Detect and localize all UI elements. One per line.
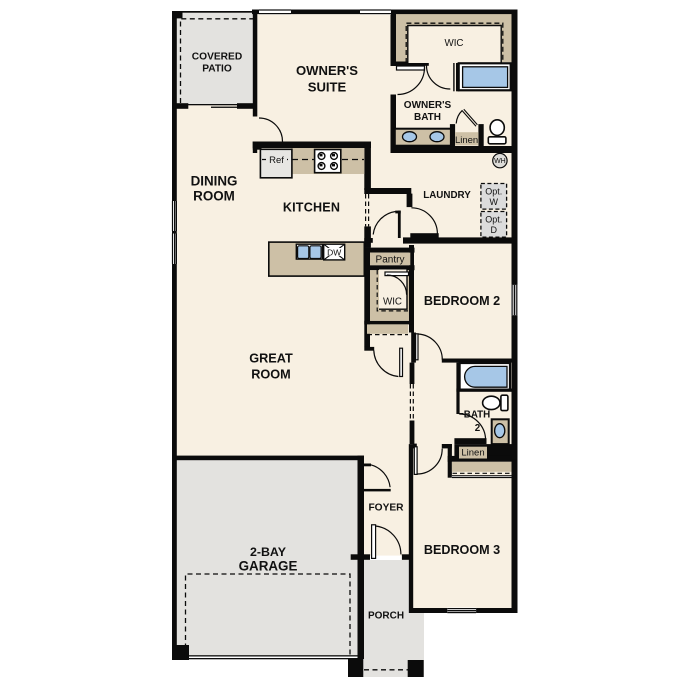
svg-text:FOYER: FOYER (368, 503, 404, 514)
svg-text:BATH: BATH (414, 112, 441, 123)
svg-text:LAUNDRY: LAUNDRY (423, 190, 471, 201)
svg-text:WIC: WIC (444, 38, 463, 49)
svg-text:OWNER'S: OWNER'S (296, 63, 358, 78)
svg-text:DINING: DINING (191, 174, 238, 189)
svg-text:WIC: WIC (383, 297, 402, 308)
svg-text:KITCHEN: KITCHEN (283, 201, 340, 215)
svg-text:WH: WH (494, 158, 506, 165)
svg-text:GREAT: GREAT (249, 351, 293, 365)
svg-text:BATH: BATH (464, 410, 490, 421)
svg-text:Opt.: Opt. (485, 215, 502, 225)
svg-text:BEDROOM 3: BEDROOM 3 (424, 543, 500, 557)
svg-text:2: 2 (475, 423, 481, 434)
svg-text:Linen: Linen (461, 447, 484, 458)
svg-text:ROOM: ROOM (251, 368, 290, 382)
svg-text:Pantry: Pantry (376, 255, 405, 266)
svg-text:DW: DW (327, 247, 341, 257)
svg-text:BEDROOM 2: BEDROOM 2 (424, 294, 500, 308)
svg-text:ROOM: ROOM (193, 189, 235, 204)
svg-text:SUITE: SUITE (308, 80, 347, 95)
svg-text:Linen: Linen (455, 135, 478, 146)
svg-text:PATIO: PATIO (202, 64, 232, 75)
svg-text:OWNER'S: OWNER'S (404, 100, 452, 111)
svg-text:PORCH: PORCH (368, 610, 404, 621)
svg-text:COVERED: COVERED (192, 52, 242, 63)
svg-text:2-BAY: 2-BAY (250, 545, 287, 559)
svg-text:GARAGE: GARAGE (239, 558, 298, 573)
svg-text:W: W (489, 197, 498, 207)
svg-text:Ref: Ref (269, 155, 284, 166)
svg-text:D: D (490, 225, 497, 235)
svg-text:Opt.: Opt. (485, 187, 502, 197)
